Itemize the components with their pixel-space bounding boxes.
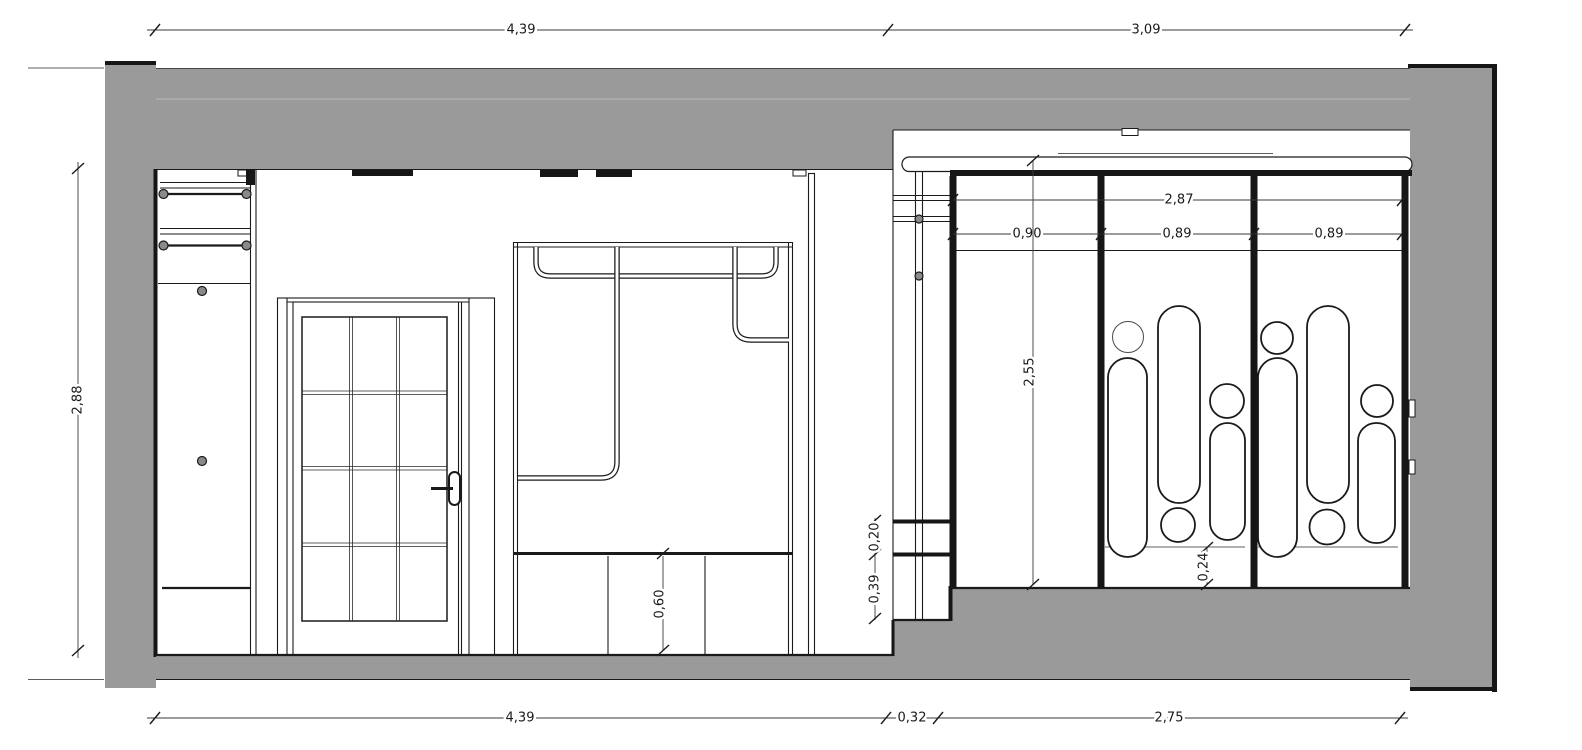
floor-left: [156, 655, 893, 680]
right-wall-top-cap: [1408, 64, 1497, 68]
support-column: [893, 157, 950, 620]
rod-end-1: [242, 190, 251, 199]
dim-label-closet-bay-3: 0,89: [1315, 227, 1344, 242]
dim-label-bottom-left: 4,39: [506, 711, 535, 726]
rod-end-2: [242, 241, 251, 250]
door-decor-bay-3: [1258, 306, 1395, 557]
open-wardrobe: [513, 173, 815, 655]
cabinet-knob-lower: [198, 457, 207, 466]
ceiling-track-3: [596, 170, 632, 177]
glazed-door: [278, 298, 495, 655]
dim-label-step-upper: 0,20: [868, 523, 883, 552]
glass-grid-frame: [302, 317, 447, 621]
dim-label-closet-bay-1: 0,90: [1013, 227, 1042, 242]
left-shelf-unit: [158, 169, 256, 655]
step-riser-2: [949, 586, 953, 621]
ceiling-mount-box-2: [793, 170, 806, 176]
step-riser-1: [892, 620, 895, 656]
pipe-rails: [518, 247, 789, 478]
cabinet-knob-upper: [198, 287, 207, 296]
step-shelf-upper: [893, 520, 950, 524]
ceiling-track-2: [540, 170, 578, 177]
closet-top-track: [902, 157, 1412, 172]
ceiling-vent: [1122, 129, 1138, 136]
dim-label-closet-plinth: 0,24: [1197, 553, 1212, 582]
door-leaf: [293, 302, 459, 655]
dim-label-cabinet-height: 0,60: [653, 590, 668, 619]
wall-bracket: [1409, 460, 1415, 474]
ceiling-track-1: [352, 170, 413, 176]
dim-label-step-lower: 0,39: [868, 575, 883, 604]
floor-step: [893, 620, 950, 680]
elevation-drawing: 4,39 3,09 4,39 0,32 2,75 2,88 2,87 0,90 …: [0, 0, 1582, 750]
dim-label-bottom-right: 2,75: [1155, 711, 1184, 726]
step-shelf-lower: [893, 553, 950, 557]
wall-bracket: [1409, 400, 1415, 417]
dim-label-left-height: 2,88: [71, 386, 86, 415]
dim-label-top-right: 3,09: [1132, 23, 1161, 38]
left-wall-top-cap: [105, 61, 156, 65]
right-wall-bottom-cap: [1410, 687, 1497, 691]
dim-label-closet-bay-2: 0,89: [1163, 227, 1192, 242]
rod-end-2: [159, 241, 168, 250]
sliding-door-closet: [893, 154, 1415, 621]
left-wall: [105, 62, 156, 688]
dim-label-closet-width: 2,87: [1165, 193, 1194, 208]
dim-label-bottom-step: 0,32: [898, 711, 927, 726]
closet-track-shadow: [950, 170, 1412, 176]
left-wall-inner-face: [154, 169, 158, 657]
rod-end: [915, 215, 923, 223]
dim-label-top-left: 4,39: [507, 23, 536, 38]
door-decor-bay-2: [1108, 306, 1245, 557]
closet-post-4: [1402, 176, 1409, 588]
dim-label-closet-height: 2,55: [1023, 358, 1038, 387]
glass-mullions: [302, 317, 447, 621]
floor-right: [950, 588, 1410, 680]
door-handle: [431, 472, 460, 505]
rod-end-1: [159, 190, 168, 199]
rod-end: [915, 272, 923, 280]
right-wall-outer-edge: [1492, 64, 1497, 692]
right-wall: [1410, 66, 1495, 688]
